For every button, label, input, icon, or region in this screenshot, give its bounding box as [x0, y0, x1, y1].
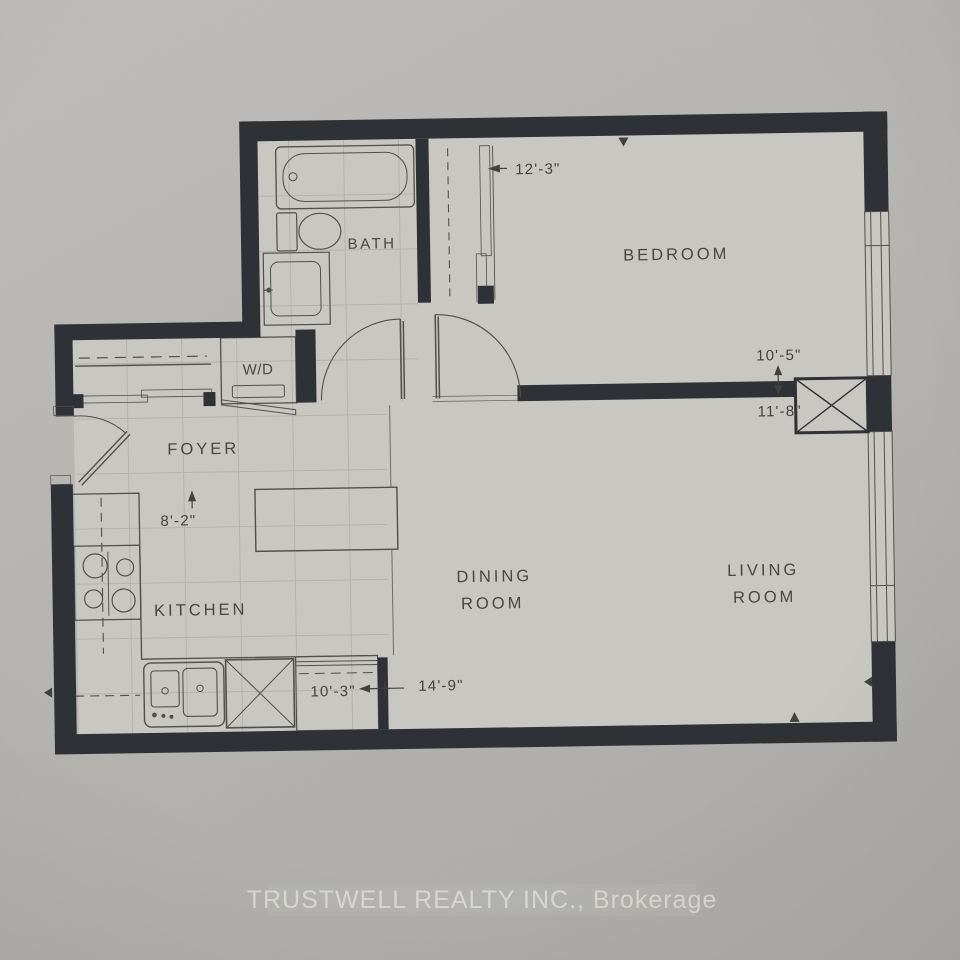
grain-overlay — [0, 0, 960, 960]
floor-plan-svg: BATH W/D FOYER KITCHEN BEDROOM DINING RO… — [0, 0, 960, 960]
floor-plan-photo: BATH W/D FOYER KITCHEN BEDROOM DINING RO… — [0, 0, 960, 960]
